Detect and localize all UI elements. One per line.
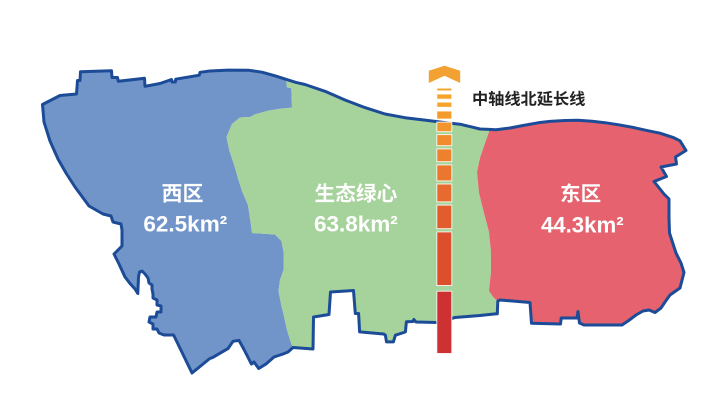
svg-text:63.8km²: 63.8km²: [314, 212, 398, 237]
svg-text:62.5km²: 62.5km²: [143, 212, 227, 237]
svg-text:44.3km²: 44.3km²: [541, 212, 624, 237]
